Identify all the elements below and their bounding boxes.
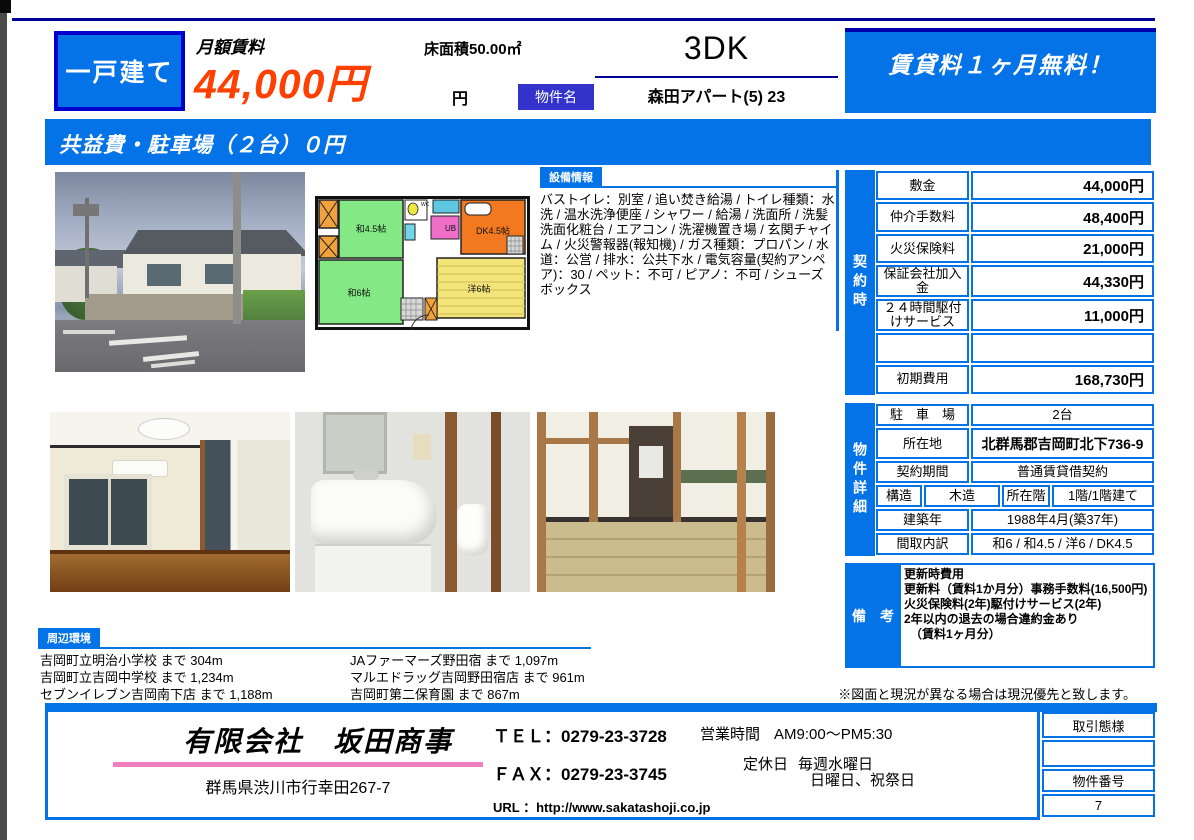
- table-row: 所在地 北群馬郡吉岡町北下736-9: [875, 427, 1155, 460]
- floorplan-drawing: WC 和4.5帖 和6帖 DK4.5帖 洋6帖 UB: [315, 196, 530, 331]
- detail-label: 間取内訳: [876, 533, 969, 555]
- cost-label: ２４時間駆付けサービス: [876, 299, 969, 331]
- photo-mirror: [323, 412, 387, 474]
- photo-wall-band: [673, 470, 775, 483]
- business-hours-row: 営業時間AM9:00～PM5:30: [700, 723, 892, 744]
- list-item: マルエドラッグ吉岡野田宿店 まで 961m: [350, 669, 650, 686]
- floorplan-room-label: DK4.5帖: [476, 225, 510, 236]
- details-sidebar-label: 物件詳細: [845, 403, 875, 556]
- cost-label: 保証会社加入金: [876, 265, 969, 297]
- table-row: 構造 木造 所在階 1階/1階建て: [875, 484, 1155, 508]
- photo-door-frame: [491, 412, 501, 592]
- window-corner-mark: [0, 0, 11, 13]
- list-item: セブンイレブン吉岡南下店 まで 1,188m: [40, 686, 340, 703]
- detail-value: 北群馬郡吉岡町北下736-9: [971, 428, 1154, 459]
- property-number-label: 物件番号: [1042, 769, 1155, 792]
- cost-label: 火災保険料: [876, 234, 969, 263]
- cost-value: 11,000円: [971, 299, 1154, 331]
- table-row: 契約期間 普通賃貸借契約: [875, 460, 1155, 484]
- cost-label: [876, 333, 969, 362]
- remarks-line: 火災保険料(2年)駆付けサービス(2年): [904, 597, 1150, 612]
- remarks-box: 備 考 更新時費用 更新料（賃料1か月分）事務手数料(16,500円) 火災保険…: [845, 563, 1155, 668]
- agency-name-underline: [113, 762, 483, 767]
- remarks-line: 更新時費用: [904, 567, 1150, 582]
- neighborhood-list-right: JAファーマーズ野田宿 まで 1,097m マルエドラッグ吉岡野田宿店 まで 9…: [350, 652, 650, 703]
- property-type-badge: 一戸建て: [54, 31, 185, 111]
- equipment-text: バストイレ：別室 / 追い焚き給湯 / トイレ種類：水洗 / 温水洗浄便座 / …: [540, 192, 836, 297]
- floorplan-room-label: UB: [445, 224, 456, 233]
- photo-toilet: [457, 504, 489, 556]
- closed-days-extra: 日曜日、祝祭日: [810, 769, 915, 790]
- cost-value: 48,400円: [971, 202, 1154, 231]
- detail-label: 所在階: [1002, 485, 1050, 507]
- contract-sidebar-label: 契約時: [845, 170, 875, 395]
- photo-window: [64, 474, 152, 550]
- detail-value: 1988年4月(築37年): [971, 509, 1154, 531]
- property-name: 森田アパート(5) 23: [595, 83, 838, 107]
- agency-name: 有限会社 坂田商事: [108, 720, 528, 760]
- remarks-text: 更新時費用 更新料（賃料1か月分）事務手数料(16,500円) 火災保険料(2年…: [899, 565, 1153, 666]
- cost-value: 44,330円: [971, 265, 1154, 297]
- list-item: JAファーマーズ野田宿 まで 1,097m: [350, 652, 650, 669]
- floorplan: WC 和4.5帖 和6帖 DK4.5帖 洋6帖 UB: [315, 196, 530, 331]
- campaign-banner: 賃貸料１ヶ月無料！: [845, 28, 1156, 113]
- fax-label: ＦＡＸ：: [493, 765, 561, 784]
- photo-shoji-frame: [589, 412, 598, 522]
- photo-window: [147, 264, 181, 286]
- floorplan-room-label: 和6帖: [347, 287, 370, 298]
- interior-photo-western-room: [50, 412, 290, 592]
- detail-label: 所在地: [876, 428, 969, 459]
- list-item: 吉岡町立明治小学校 まで 304m: [40, 652, 340, 669]
- neighborhood-section-label: 周辺環境: [38, 628, 100, 647]
- cost-value: 168,730円: [971, 365, 1154, 394]
- floorplan-room-label: 和4.5帖: [356, 223, 387, 234]
- detail-value: 1階/1階建て: [1052, 485, 1154, 507]
- detail-label: 駐 車 場: [876, 404, 969, 426]
- list-item: 吉岡町第二保育園 まで 867m: [350, 686, 650, 703]
- tel-number: 0279-23-3728: [561, 727, 667, 746]
- detail-label: 建築年: [876, 509, 969, 531]
- interior-photo-tatami-room: [537, 412, 775, 592]
- cost-value: [971, 333, 1154, 362]
- detail-value: 普通賃貸借契約: [971, 461, 1154, 483]
- detail-value: 和6 / 和4.5 / 洋6 / DK4.5: [971, 533, 1154, 555]
- footer-right-column: 取引態様 物件番号 7: [1042, 712, 1155, 819]
- remarks-line: 2年以内の退去の場合違約金あり: [904, 612, 1150, 627]
- photo-door-frame: [445, 412, 457, 592]
- photo-sink-basin: [311, 480, 437, 544]
- closed-label: 定休日: [743, 756, 788, 773]
- cost-label: 初期費用: [876, 365, 969, 394]
- table-row: 間取内訳 和6 / 和4.5 / 洋6 / DK4.5: [875, 532, 1155, 556]
- contract-cost-table: 契約時 敷金44,000円 仲介手数料48,400円 火災保険料21,000円 …: [845, 170, 1155, 395]
- table-row: 仲介手数料48,400円: [875, 201, 1155, 232]
- floorplan-room-label: 洋6帖: [467, 283, 490, 294]
- photo-road-marking: [63, 330, 115, 334]
- photo-shoji-frame: [673, 412, 681, 522]
- detail-value: 木造: [924, 485, 1000, 507]
- fees-banner: 共益費・駐車場（２台）０円: [45, 119, 1151, 165]
- table-row: 建築年 1988年4月(築37年): [875, 508, 1155, 532]
- photo-window: [205, 264, 235, 284]
- table-row: [875, 332, 1155, 363]
- hours-label: 営業時間: [700, 726, 760, 743]
- agency-address: 群馬県渋川市行幸田267-7: [143, 774, 453, 798]
- deal-type-value: [1042, 740, 1155, 767]
- property-name-label: 物件名: [518, 84, 594, 110]
- rent-value: 44,000円: [194, 50, 367, 110]
- neighborhood-list-left: 吉岡町立明治小学校 まで 304m 吉岡町立吉岡中学校 まで 1,234m セブ…: [40, 652, 340, 703]
- table-row: 保証会社加入金44,330円: [875, 264, 1155, 298]
- remarks-line: （賃料1ヶ月分）: [904, 627, 1150, 642]
- cost-label: 敷金: [876, 171, 969, 200]
- agency-info-box: 有限会社 坂田商事 群馬県渋川市行幸田267-7 ＴＥＬ：0279-23-372…: [45, 712, 1040, 820]
- table-row: 敷金44,000円: [875, 170, 1155, 201]
- photo-utility-pole: [233, 172, 241, 324]
- cost-value: 44,000円: [971, 171, 1154, 200]
- floorplan-wc-label: WC: [421, 202, 430, 208]
- photo-wood-floor: [50, 550, 290, 592]
- layout-underline: [595, 76, 838, 78]
- tel-label: ＴＥＬ：: [493, 727, 561, 746]
- footer-top-bar: [45, 703, 1157, 712]
- equipment-section-label: 設備情報: [540, 167, 602, 186]
- remarks-line: 更新料（賃料1か月分）事務手数料(16,500円): [904, 582, 1150, 597]
- hours-value: AM9:00～PM5:30: [774, 726, 892, 743]
- remarks-label: 備 考: [847, 565, 899, 666]
- interior-photo-washbasin: [295, 412, 530, 592]
- photo-ceiling-light: [138, 418, 190, 440]
- layout-type: 3DK: [595, 30, 838, 67]
- table-row: ２４時間駆付けサービス11,000円: [875, 298, 1155, 332]
- cost-label: 仲介手数料: [876, 202, 969, 231]
- floor-area: 床面積50.00㎡: [424, 38, 522, 59]
- exterior-photo: [55, 172, 305, 372]
- list-item: 吉岡町立吉岡中学校 まで 1,234m: [40, 669, 340, 686]
- header-top-rule: [12, 18, 1155, 21]
- equipment-underline: [540, 186, 836, 188]
- photo-shoji-frame: [537, 412, 546, 592]
- fax-number: 0279-23-3745: [561, 765, 667, 784]
- photo-shoji-frame: [737, 412, 746, 592]
- detail-value: 2台: [971, 404, 1154, 426]
- table-row: 初期費用168,730円: [875, 364, 1155, 395]
- yen-suffix: 円: [452, 85, 468, 109]
- photo-shoji-frame: [766, 412, 775, 592]
- window-edge-strip: [0, 0, 7, 840]
- neighborhood-underline: [38, 647, 591, 649]
- section-divider: [836, 170, 839, 331]
- url-label: URL ：: [493, 800, 536, 815]
- photo-switch-plate: [413, 434, 431, 460]
- photo-pole-crossarm: [73, 204, 99, 216]
- detail-label: 契約期間: [876, 461, 969, 483]
- photo-house-roof: [110, 230, 305, 256]
- deal-type-label: 取引態様: [1042, 712, 1155, 738]
- detail-label: 構造: [876, 485, 922, 507]
- tel-row: ＴＥＬ：0279-23-3728: [493, 722, 667, 747]
- url-row: URL ：http://www.sakatashoji.co.jp: [493, 797, 710, 816]
- url-value: http://www.sakatashoji.co.jp: [536, 800, 710, 815]
- photo-faucet: [353, 470, 379, 480]
- disclaimer-note: ※図面と現況が異なる場合は現況優先と致します。: [700, 684, 1136, 703]
- property-details-table: 物件詳細 駐 車 場 2台 所在地 北群馬郡吉岡町北下736-9 契約期間 普通…: [845, 403, 1155, 556]
- cost-value: 21,000円: [971, 234, 1154, 263]
- photo-cabinet: [315, 544, 431, 592]
- table-row: 駐 車 場 2台: [875, 403, 1155, 427]
- property-number-value: 7: [1042, 794, 1155, 817]
- real-estate-flyer: 一戸建て 月額賃料 44,000円 床面積50.00㎡ 円 物件名 3DK 森田…: [0, 0, 1194, 840]
- photo-window: [639, 446, 663, 478]
- fax-row: ＦＡＸ：0279-23-3745: [493, 760, 667, 785]
- photo-lintel: [537, 438, 629, 444]
- table-row: 火災保険料21,000円: [875, 233, 1155, 264]
